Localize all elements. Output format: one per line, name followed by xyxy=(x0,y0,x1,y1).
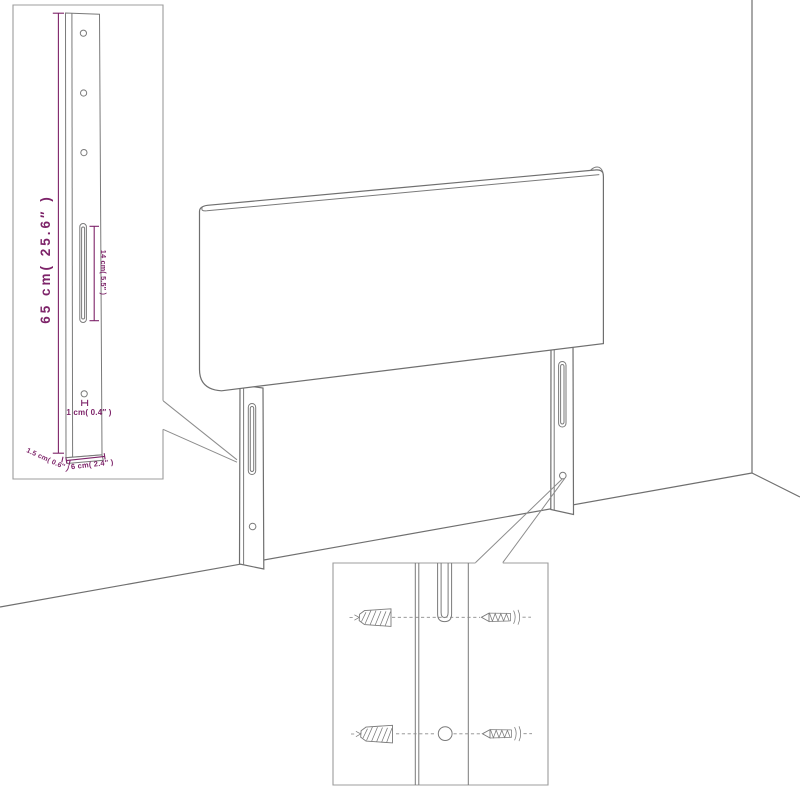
right-leg-screw-hole xyxy=(560,472,567,479)
diagram-canvas: 65 cm( 25.6″ ) 14 cm( 5.5″ ) 1 cm( 0.4″ … xyxy=(0,0,800,800)
inset-leg-hole xyxy=(81,150,87,156)
mounting-inset-callout-line xyxy=(476,479,563,563)
dimension-label-slot: 14 cm( 5.5″ ) xyxy=(99,250,108,296)
inset-leg-bottom-hole xyxy=(81,391,87,397)
callout-lines xyxy=(163,401,565,563)
leg-inset-callout-line xyxy=(163,401,237,460)
mounting-inset-callout-line xyxy=(503,479,565,563)
dimension-label-height: 65 cm( 25.6″ ) xyxy=(38,194,53,324)
left-leg-slot xyxy=(248,404,255,475)
product-diagram: 65 cm( 25.6″ ) 14 cm( 5.5″ ) 1 cm( 0.4″ … xyxy=(0,0,800,800)
headboard-right-leg xyxy=(551,341,574,515)
inset-mounting-detail xyxy=(333,563,548,785)
inset-background xyxy=(333,563,548,785)
inset-leg-hole xyxy=(80,30,86,36)
mounting-hole xyxy=(438,727,452,741)
floor-line-right xyxy=(752,473,800,497)
left-leg-screw-hole xyxy=(249,523,256,530)
inset-leg-side-edge xyxy=(72,13,73,457)
dimension-label-hole: 1 cm( 0.4″ ) xyxy=(66,408,111,417)
headboard-left-leg xyxy=(240,385,264,569)
inset-leg-slot xyxy=(80,224,87,323)
inset-leg-dimensions: 65 cm( 25.6″ ) 14 cm( 5.5″ ) 1 cm( 0.4″ … xyxy=(13,5,163,479)
leg-inset-callout-line xyxy=(163,429,237,462)
headboard-panel xyxy=(200,167,604,391)
inset-leg-hole xyxy=(81,90,87,96)
right-leg-slot xyxy=(559,362,566,428)
panel-outline xyxy=(200,170,604,391)
